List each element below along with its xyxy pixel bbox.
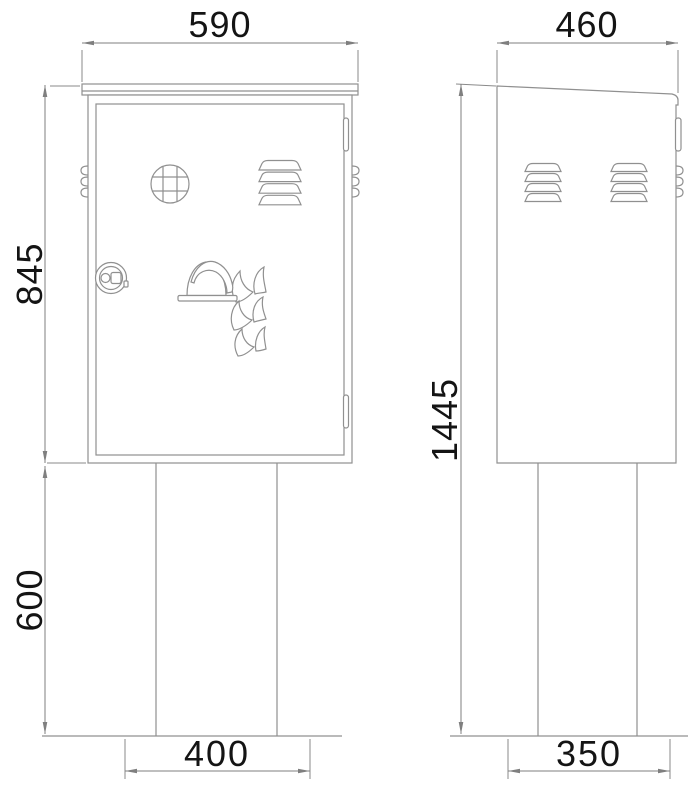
side-view: 460 1445 350 [424,4,688,779]
helmet-brim [178,296,237,302]
technical-drawing: 590 845 600 400 [0,0,695,786]
pedestal-side [538,463,637,736]
side-louver-edge-left-icon [81,166,88,197]
dim-label-base-width: 400 [184,733,250,774]
dim-label-total-height: 1445 [424,378,465,462]
front-view: 590 845 600 400 [9,4,359,779]
dim-label-cabinet-height: 845 [9,242,50,305]
dim-label-overall-depth: 460 [555,4,618,45]
dim-side-total-height: 1445 [424,84,496,734]
front-roof-panel [82,84,358,95]
dim-side-base-depth: 350 [508,733,670,779]
dim-side-overall-depth: 460 [497,4,678,93]
side-louver-edge-right-icon [352,166,359,197]
dim-front-base-width: 400 [125,733,310,779]
pedestal-front [156,463,277,736]
side-cabinet-body [497,86,678,463]
dim-label-base-depth: 350 [556,733,622,774]
dim-label-overall-width: 590 [188,4,251,45]
door-hinge-bottom-icon [344,395,349,428]
dim-front-overall-width: 590 [82,4,358,82]
drawing-canvas: 590 845 600 400 [0,0,695,786]
dim-front-cabinet-height: 845 [9,85,86,463]
door-hinge-top-icon [344,118,349,151]
dim-label-pedestal-height: 600 [9,568,50,631]
dim-front-pedestal-height: 600 [9,466,50,734]
side-louver-edge-icon [676,166,683,197]
side-hinge-edge-icon [676,118,682,151]
